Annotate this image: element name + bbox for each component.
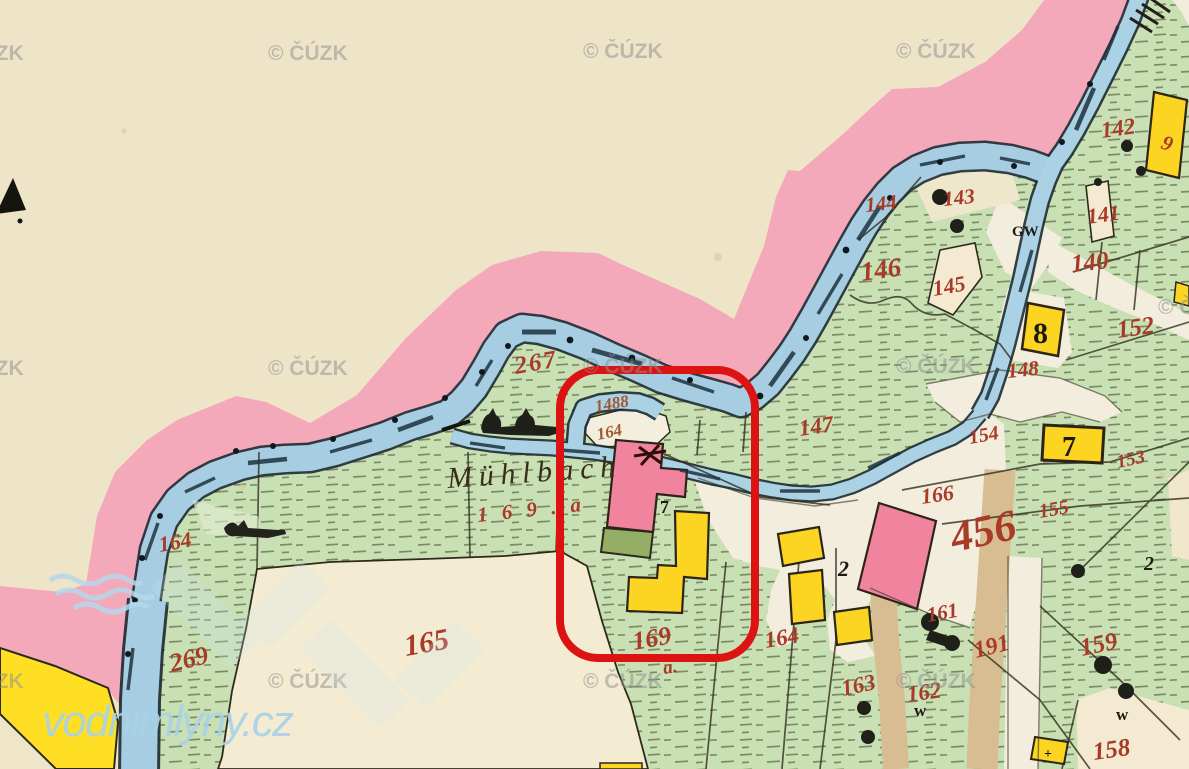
svg-text:2: 2 [1143, 553, 1154, 575]
svg-text:© ČÚZK: © ČÚZK [896, 39, 976, 63]
svg-text:© ČÚZK: © ČÚZK [268, 356, 348, 380]
svg-text:158: 158 [1091, 734, 1132, 766]
svg-text:141: 141 [1085, 200, 1121, 229]
svg-text:147: 147 [797, 411, 836, 441]
svg-text:148: 148 [1006, 356, 1040, 383]
svg-text:8: 8 [1033, 317, 1048, 350]
svg-text:143: 143 [942, 184, 976, 211]
svg-text:144: 144 [864, 190, 898, 217]
svg-text:© ČÚZK: © ČÚZK [896, 354, 976, 378]
svg-text:140: 140 [1070, 247, 1111, 278]
svg-text:GW: GW [1012, 224, 1039, 240]
svg-text:© ČÚZK: © ČÚZK [583, 39, 663, 63]
svg-text:142: 142 [1099, 113, 1137, 143]
svg-text:© Č: © Č [1158, 295, 1189, 319]
svg-text:vodnimlyny.cz: vodnimlyny.cz [42, 697, 294, 746]
svg-text:146: 146 [859, 252, 904, 287]
svg-text:© ČÚZK: © ČÚZK [583, 354, 663, 378]
svg-text:7: 7 [660, 497, 669, 517]
svg-text:166: 166 [919, 480, 955, 509]
svg-text:w: w [914, 701, 927, 720]
svg-text:© ČÚZK: © ČÚZK [0, 356, 24, 380]
svg-text:7: 7 [1062, 432, 1076, 463]
svg-text:152: 152 [1115, 312, 1156, 344]
svg-text:2: 2 [837, 556, 849, 581]
svg-text:© ČÚZK: © ČÚZK [268, 41, 348, 65]
svg-text:w: w [1116, 705, 1129, 724]
svg-text:© ČÚZK: © ČÚZK [0, 669, 24, 693]
svg-text:© ČÚZK: © ČÚZK [0, 41, 24, 65]
svg-text:© ČÚZK: © ČÚZK [896, 669, 976, 693]
svg-text:© ČÚZK: © ČÚZK [583, 669, 663, 693]
svg-text:+: + [1044, 747, 1052, 762]
